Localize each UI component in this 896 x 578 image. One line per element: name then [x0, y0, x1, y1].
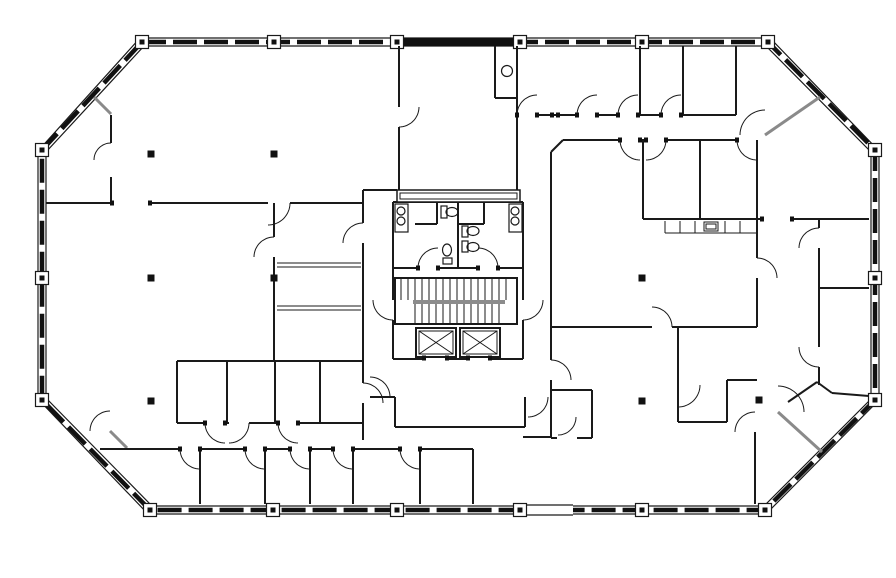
door-swing-arc	[400, 449, 420, 469]
door-jamb	[351, 447, 355, 452]
door-swing-arc	[333, 449, 353, 469]
door-jamb	[288, 447, 292, 452]
entry-band-gap	[523, 504, 573, 516]
angled-partition	[778, 412, 822, 452]
door-swing-arc	[363, 383, 383, 403]
door-swing-arc	[399, 107, 419, 127]
door-swing-arc	[245, 449, 265, 469]
door-swing-arc	[620, 140, 640, 160]
door-jambs	[110, 113, 794, 452]
interior-walls	[46, 46, 869, 504]
door-jamb	[618, 138, 622, 143]
angled-partition	[94, 97, 111, 114]
window-wall-outer-line	[38, 38, 879, 514]
door-jamb	[276, 421, 280, 426]
mullion-column-dot	[766, 40, 771, 45]
angled-partition	[765, 97, 820, 135]
mullion-column-dot	[140, 40, 145, 45]
door-swing-arc	[517, 95, 537, 115]
door-swing-arc	[180, 449, 200, 469]
door-jamb	[644, 138, 648, 143]
sink-icon	[397, 207, 405, 215]
door-jamb	[178, 447, 182, 452]
door-jamb	[148, 201, 152, 206]
door-jamb	[398, 447, 402, 452]
shaft-bar-outer	[397, 190, 520, 202]
door-jamb	[243, 447, 247, 452]
interior-column	[271, 275, 278, 282]
mullion-column-dot	[40, 276, 45, 281]
mullion-column-dot	[148, 508, 153, 513]
door-jamb	[515, 113, 519, 118]
door-jamb	[760, 217, 764, 222]
door-jamb	[466, 356, 470, 361]
mullion-column-dot	[640, 40, 645, 45]
interior-column	[148, 275, 155, 282]
door-swing-arc	[370, 377, 390, 397]
door-jamb	[110, 201, 114, 206]
door-swing-arc	[268, 203, 290, 225]
mullion-column-dot	[518, 508, 523, 513]
angled-partition	[110, 431, 127, 448]
door-swing-arc	[418, 248, 438, 268]
door-swings	[90, 95, 819, 469]
door-jamb	[416, 266, 420, 271]
door-swing-arc	[757, 258, 777, 278]
door-jamb	[436, 266, 440, 271]
kitchen-sink-icon	[502, 66, 513, 77]
door-swing-arc	[799, 228, 819, 248]
toilet-icon	[467, 243, 479, 252]
wall-segment	[551, 140, 563, 152]
door-swing-arc	[646, 140, 666, 160]
interior-column	[271, 151, 278, 158]
door-jamb	[308, 447, 312, 452]
floor-plan-drawing	[0, 0, 896, 578]
toilet-icon	[446, 208, 458, 217]
sink-console	[509, 204, 522, 232]
mullion-column-dot	[395, 508, 400, 513]
interior-column	[756, 397, 763, 404]
door-jamb	[203, 421, 207, 426]
door-swing-arc	[528, 397, 548, 417]
door-jamb	[422, 356, 426, 361]
wall-segment	[832, 393, 869, 396]
interior-column	[148, 398, 155, 405]
interior-column	[639, 398, 646, 405]
door-swing-arc	[618, 95, 638, 115]
door-swing-arc	[735, 412, 755, 432]
door-swing-arc	[551, 360, 571, 380]
mullion-column-dot	[640, 508, 645, 513]
toilet-tank	[443, 258, 452, 264]
sink-icon	[511, 207, 519, 215]
mullion-column-dot	[40, 398, 45, 403]
door-jamb	[263, 447, 267, 452]
window-wall-inner-line	[46, 46, 871, 506]
door-swing-arc	[523, 300, 543, 320]
sink-icon	[397, 217, 405, 225]
door-swing-arc	[229, 423, 249, 443]
plumbing-fixtures	[395, 66, 718, 265]
counter-sink-icon	[706, 224, 716, 229]
interior-column	[148, 151, 155, 158]
wall-segment	[788, 382, 817, 402]
mullion-column-dot	[873, 276, 878, 281]
door-jamb	[664, 138, 668, 143]
door-swing-arc	[290, 449, 310, 469]
door-jamb	[198, 447, 202, 452]
door-jamb	[331, 447, 335, 452]
door-jamb	[223, 421, 227, 426]
door-swing-arc	[740, 110, 765, 135]
solid-wall-band	[399, 38, 517, 46]
mullion-column-dot	[395, 40, 400, 45]
floor-plan-page	[0, 0, 896, 578]
door-jamb	[556, 113, 560, 118]
door-swing-arc	[205, 423, 225, 443]
door-jamb	[636, 113, 640, 118]
door-swing-arc	[737, 140, 757, 160]
door-jamb	[575, 113, 579, 118]
window-glazing	[42, 42, 875, 510]
angled-partition-walls	[94, 97, 822, 452]
door-swing-arc	[94, 143, 111, 160]
toilet-icon	[467, 227, 479, 236]
door-swing-arc	[373, 300, 393, 320]
door-jamb	[418, 447, 422, 452]
door-swing-arc	[661, 95, 681, 115]
mullion-column-dot	[873, 148, 878, 153]
door-jamb	[535, 113, 539, 118]
door-jamb	[445, 356, 449, 361]
door-swing-arc	[343, 223, 363, 243]
mullion-column-dot	[873, 398, 878, 403]
mullion-column-dot	[40, 148, 45, 153]
door-jamb	[616, 113, 620, 118]
sink-icon	[511, 217, 519, 225]
door-jamb	[638, 138, 642, 143]
door-jamb	[496, 266, 500, 271]
door-jamb	[488, 356, 492, 361]
door-swing-arc	[254, 237, 274, 257]
door-jamb	[550, 113, 554, 118]
mullion-column-dot	[763, 508, 768, 513]
mullion-column-dot	[518, 40, 523, 45]
mullion-column-dot	[271, 508, 276, 513]
door-jamb	[659, 113, 663, 118]
door-jamb	[296, 421, 300, 426]
door-swing-arc	[577, 95, 597, 115]
door-jamb	[735, 138, 739, 143]
mullion-column-dot	[272, 40, 277, 45]
door-swing-arc	[652, 307, 672, 327]
door-swing-arc	[278, 423, 298, 443]
door-swing-arc	[478, 248, 498, 268]
door-swing-arc	[558, 417, 576, 435]
door-swing-arc	[799, 347, 819, 367]
door-swing-arc	[678, 385, 700, 407]
sink-console	[395, 204, 408, 232]
door-swing-arc	[90, 411, 110, 431]
door-jamb	[476, 266, 480, 271]
wall-segment	[817, 382, 832, 393]
interior-column	[639, 275, 646, 282]
door-jamb	[790, 217, 794, 222]
toilet-icon	[443, 244, 452, 256]
door-jamb	[595, 113, 599, 118]
door-jamb	[679, 113, 683, 118]
